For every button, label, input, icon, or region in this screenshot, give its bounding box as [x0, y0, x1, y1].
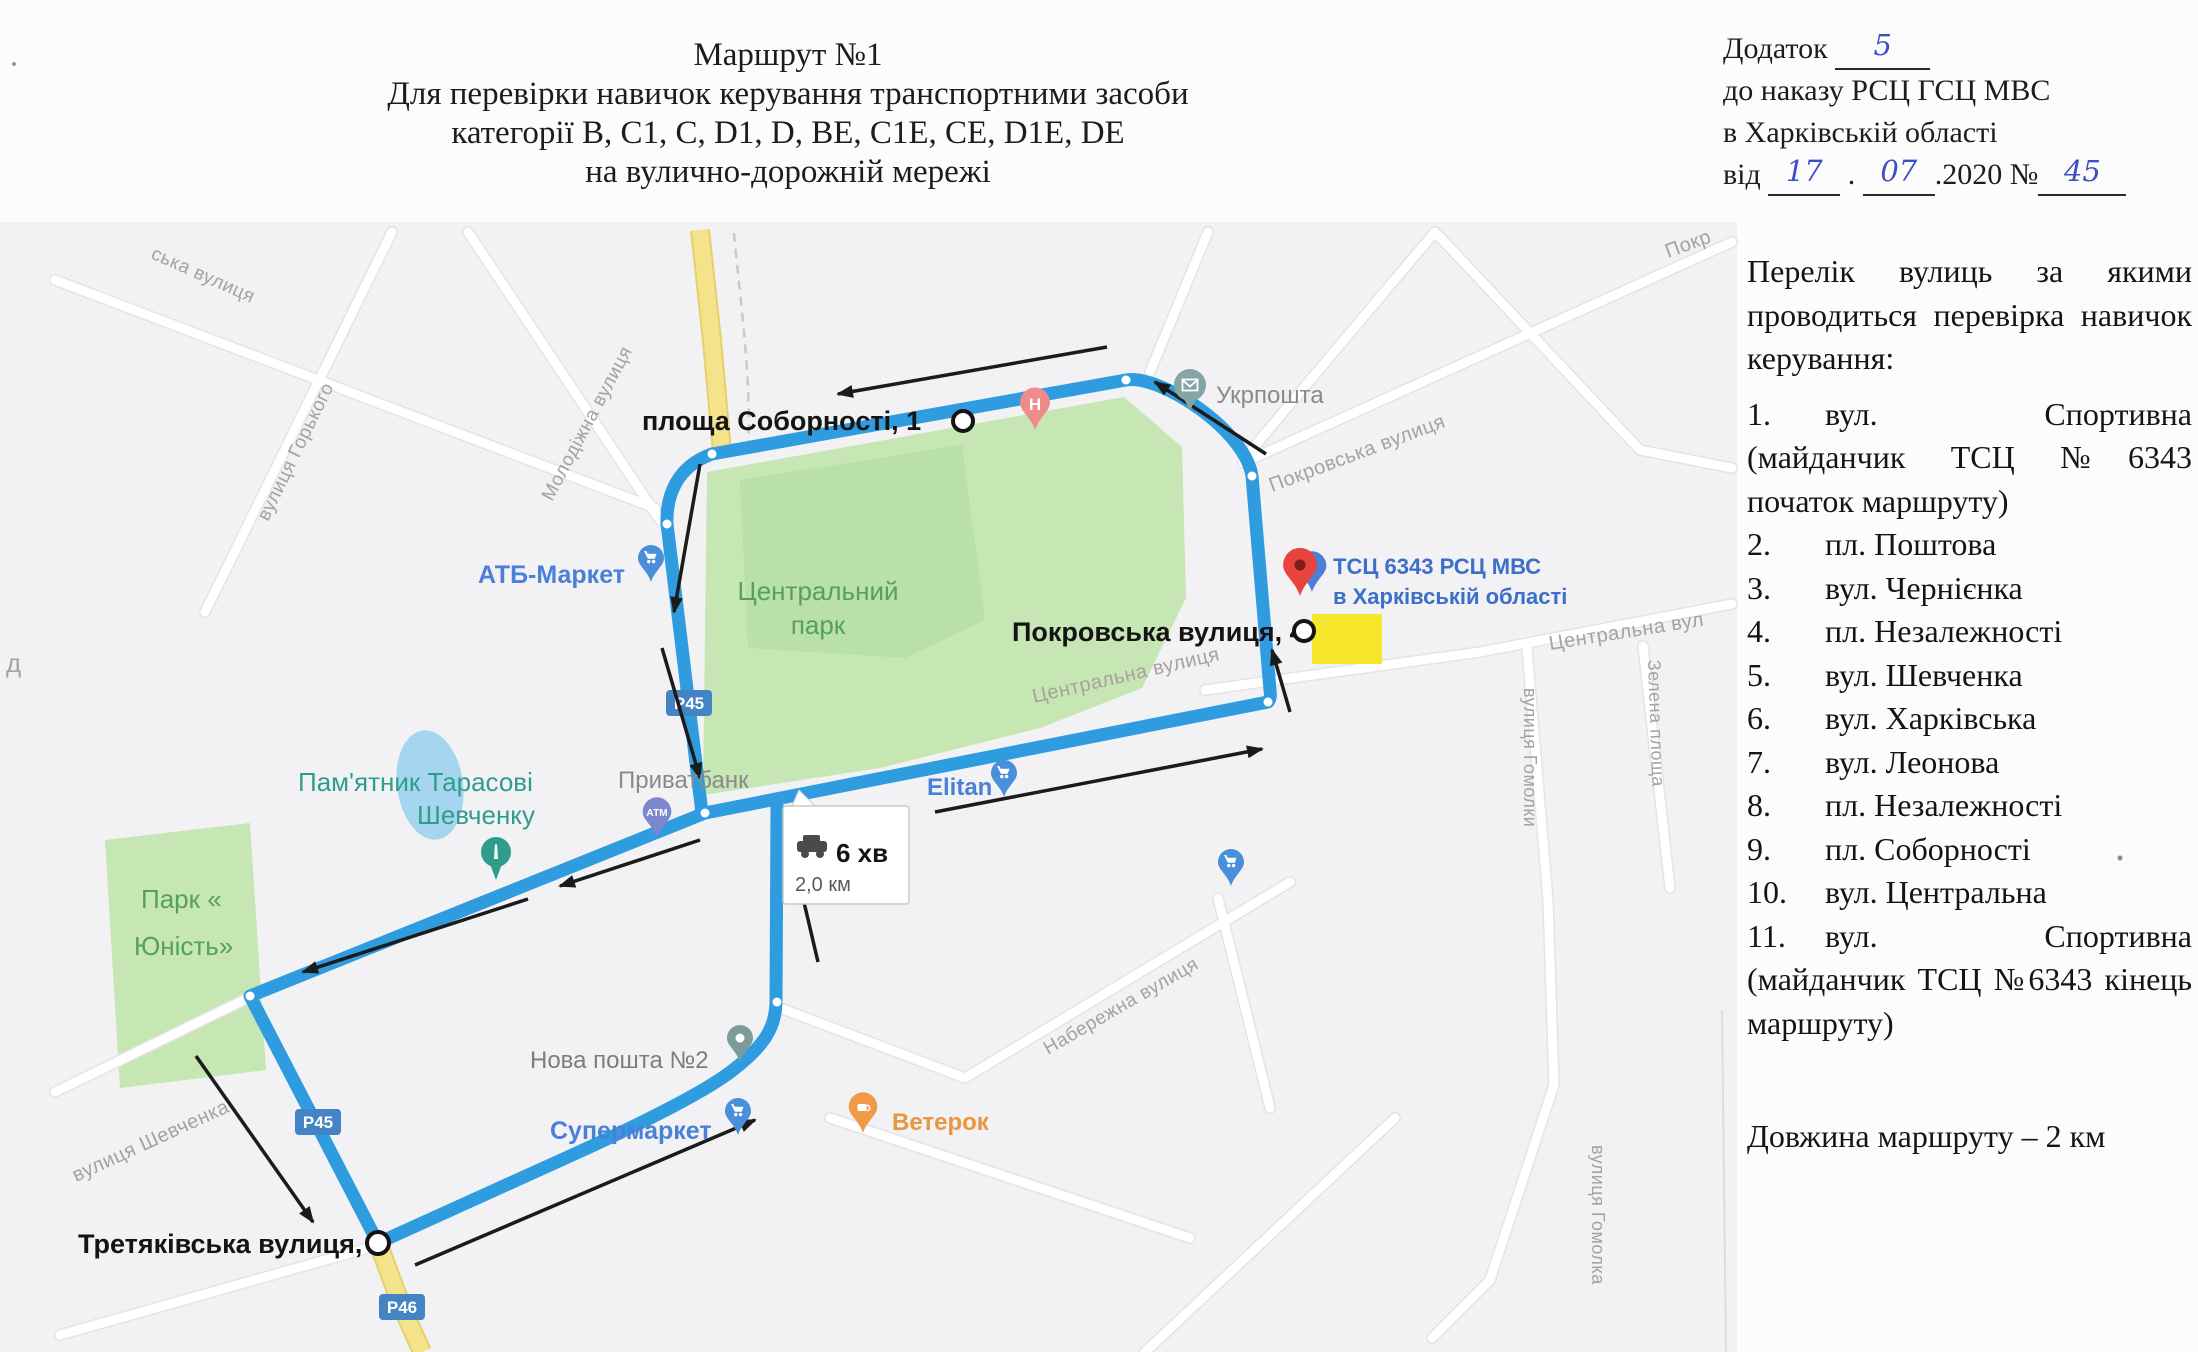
title-line: Для перевірки навичок керування транспор…	[368, 75, 1208, 114]
date-month-blank: 07	[1863, 158, 1935, 196]
tsc-building-highlight	[1312, 614, 1382, 664]
svg-text:Парк «: Парк «	[141, 884, 222, 914]
street-label: вулиця Гомолка	[1588, 1145, 1608, 1285]
annex-line2: до наказу РСЦ ГСЦ МВС	[1723, 70, 2126, 112]
route-vertex	[1122, 376, 1131, 385]
annex-line3: в Харківській області	[1723, 112, 2126, 154]
shield-p46: Р46	[379, 1294, 425, 1320]
date-prefix: від	[1723, 158, 1761, 191]
svg-text:в Харківській області: в Харківській області	[1333, 584, 1567, 609]
handwritten-month: 07	[1880, 154, 1917, 188]
item-number: 3.	[1747, 567, 1825, 611]
poi-label-atb: АТБ-Маркет	[478, 561, 625, 589]
title-line: на вулично-дорожній мережі	[368, 153, 1208, 192]
route-point-label: Покровська вулиця, 4	[1012, 617, 1305, 647]
number-sign: №	[2010, 158, 2039, 191]
svg-text:парк: парк	[791, 610, 846, 640]
route-vertex	[663, 520, 672, 529]
order-number-blank: 45	[2038, 158, 2126, 196]
poi-label-supermarket: Супермаркет	[550, 1117, 712, 1145]
streets-panel: Перелік вулиць за якими проводиться пере…	[1747, 250, 2192, 1045]
item-text: пл. Поштова	[1825, 526, 1996, 562]
list-item: 7.вул. Леонова	[1747, 741, 2192, 785]
svg-text:Пам'ятник Тарасові: Пам'ятник Тарасові	[298, 767, 533, 797]
list-item: 1.вул. Спортивна (майданчик ТСЦ №6343 по…	[1747, 393, 2192, 524]
item-text: вул. Чернієнка	[1825, 570, 2023, 606]
date-dot: .	[1840, 158, 1863, 191]
poi-label-ukrposhta: Укрпошта	[1216, 382, 1324, 409]
route-vertex	[1264, 698, 1273, 707]
item-text: пл. Незалежності	[1825, 787, 2062, 823]
central-park-inner	[740, 445, 985, 658]
svg-text:Н: Н	[1029, 395, 1041, 414]
route-vertex	[1248, 472, 1257, 481]
svg-text:Шевченку: Шевченку	[417, 800, 535, 830]
item-number: 1.	[1747, 393, 1825, 437]
annex-line1: Додаток 5	[1723, 28, 2126, 70]
trip-info-box: 6 хв 2,0 км	[783, 790, 909, 904]
list-item: 8.пл. Незалежності	[1747, 784, 2192, 828]
streets-intro: Перелік вулиць за якими проводиться пере…	[1747, 250, 2192, 381]
handwritten-order-number: 45	[2064, 154, 2101, 188]
item-text: пл. Соборності	[1825, 831, 2031, 867]
item-number: 2.	[1747, 523, 1825, 567]
handwritten-annex-number: 5	[1873, 28, 1891, 62]
poi-label-privatbank: Приватбанк	[618, 767, 749, 794]
list-item: 6.вул. Харківська	[1747, 697, 2192, 741]
route-vertex	[701, 809, 710, 818]
shield-p45-south: Р45	[295, 1109, 341, 1135]
svg-text:Р46: Р46	[387, 1298, 417, 1317]
item-number: 5.	[1747, 654, 1825, 698]
route-point-circle	[1294, 621, 1314, 641]
poi-label-elitan: Elitan	[927, 774, 992, 801]
route-point-label: площа Соборності, 1	[642, 406, 921, 436]
route-vertex	[773, 998, 782, 1007]
title-line: категорії B, C1, C, D1, D, BE, C1E, CE, …	[368, 114, 1208, 153]
item-text: пл. Незалежності	[1825, 613, 2062, 649]
shield-p45: Р45	[666, 690, 712, 716]
route-vertex	[708, 450, 717, 459]
trip-distance: 2,0 км	[795, 874, 851, 896]
svg-text:Юність»: Юність»	[134, 931, 233, 961]
svg-text:Центральний: Центральний	[737, 576, 898, 606]
route-point-circle	[953, 411, 973, 431]
route-point-circle	[367, 1232, 389, 1254]
svg-text:Р45: Р45	[303, 1113, 333, 1132]
date-day-blank: 17	[1768, 158, 1840, 196]
item-text: вул. Харківська	[1825, 700, 2036, 736]
item-number: 7.	[1747, 741, 1825, 785]
poi-label-veterok: Ветерок	[892, 1109, 990, 1136]
route-length-note: Довжина маршруту – 2 км	[1747, 1118, 2105, 1155]
document-title: Маршрут №1 Для перевірки навичок керуван…	[368, 36, 1208, 192]
item-text: вул. Леонова	[1825, 744, 1999, 780]
trip-time: 6 хв	[836, 838, 888, 868]
route-point-label: Третяківська вулиця, 1	[78, 1229, 385, 1259]
item-text: вул. Шевченка	[1825, 657, 2023, 693]
street-label: вулиця Гомолки	[1520, 688, 1540, 827]
list-item: 2.пл. Поштова	[1747, 523, 2192, 567]
item-number: 8.	[1747, 784, 1825, 828]
list-item: 3.вул. Чернієнка	[1747, 567, 2192, 611]
handwritten-day: 17	[1786, 154, 1823, 188]
route-vertex	[246, 992, 255, 1001]
item-number: 6.	[1747, 697, 1825, 741]
item-number: 9.	[1747, 828, 1825, 872]
list-item: 10.вул. Центральна	[1747, 871, 2192, 915]
scan-artifact	[12, 62, 16, 66]
item-number: 4.	[1747, 610, 1825, 654]
item-number: 10.	[1747, 871, 1825, 915]
annex-label: Додаток	[1723, 32, 1828, 65]
list-item: 9.пл. Соборності	[1747, 828, 2192, 872]
scanned-route-document: Покровська вулиця Покр Центральна вулиця…	[0, 0, 2198, 1352]
list-item: 11.вул. Спортивна (майданчик ТСЦ №6343 к…	[1747, 915, 2192, 1046]
date-year: .2020	[1935, 158, 2003, 191]
svg-text:ТСЦ 6343 РСЦ МВС: ТСЦ 6343 РСЦ МВС	[1333, 554, 1541, 579]
svg-text:АТМ: АТМ	[646, 808, 667, 819]
item-number: 11.	[1747, 915, 1825, 959]
annex-number-blank: 5	[1835, 32, 1930, 70]
title-line: Маршрут №1	[368, 36, 1208, 75]
list-item: 4.пл. Незалежності	[1747, 610, 2192, 654]
street-label-partial: д	[6, 648, 22, 678]
poi-label-nova-poshta: Нова пошта №2	[530, 1047, 709, 1074]
item-text: вул. Центральна	[1825, 874, 2047, 910]
annex-block: Додаток 5 до наказу РСЦ ГСЦ МВС в Харків…	[1723, 28, 2126, 196]
list-item: 5.вул. Шевченка	[1747, 654, 2192, 698]
annex-line4: від 17 . 07.2020 №45	[1723, 154, 2126, 196]
